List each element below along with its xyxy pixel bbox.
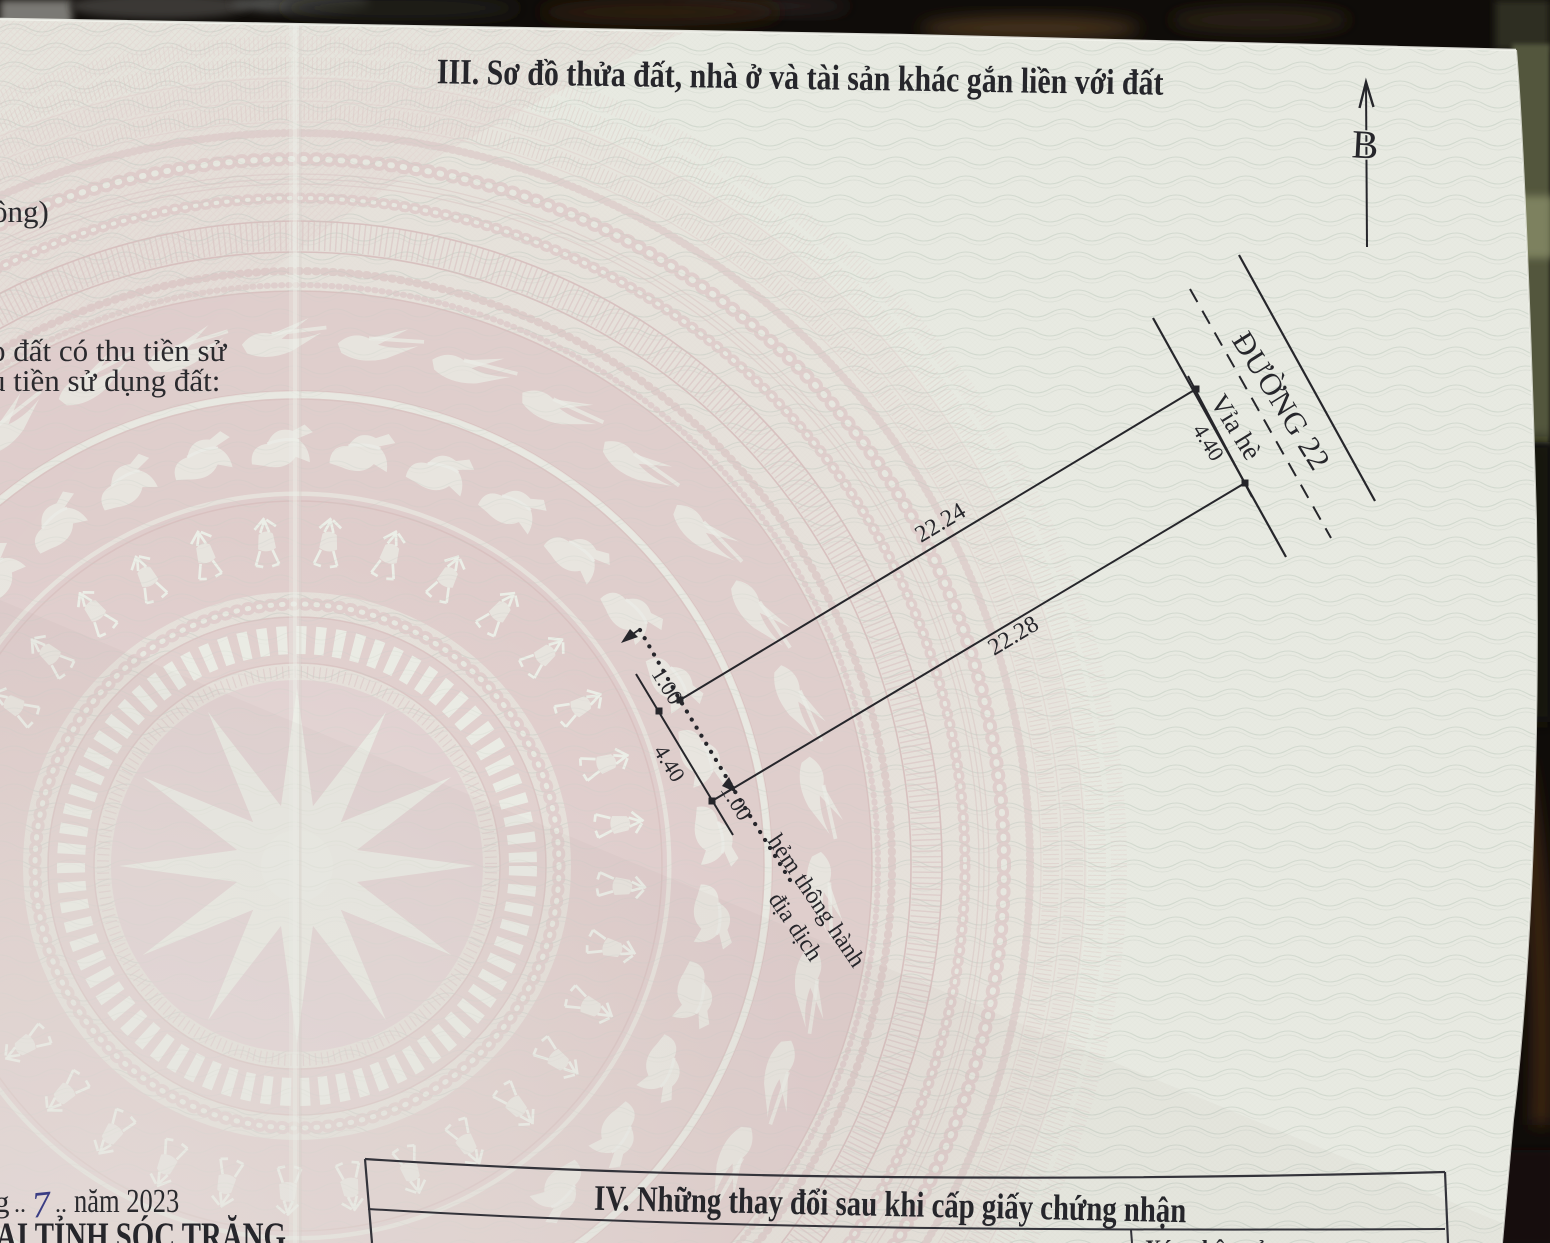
svg-text:g: g (0, 1184, 10, 1219)
svg-text:u tiền sử dụng đất:: u tiền sử dụng đất: (0, 363, 220, 398)
svg-text:AI TỈNH SÓC TRĂNG: AI TỈNH SÓC TRĂNG (0, 1215, 286, 1243)
svg-text:Xác nhận của: Xác nhận của (1145, 1236, 1280, 1243)
svg-text:B: B (1351, 121, 1380, 167)
svg-text:ông): ông) (0, 194, 49, 229)
